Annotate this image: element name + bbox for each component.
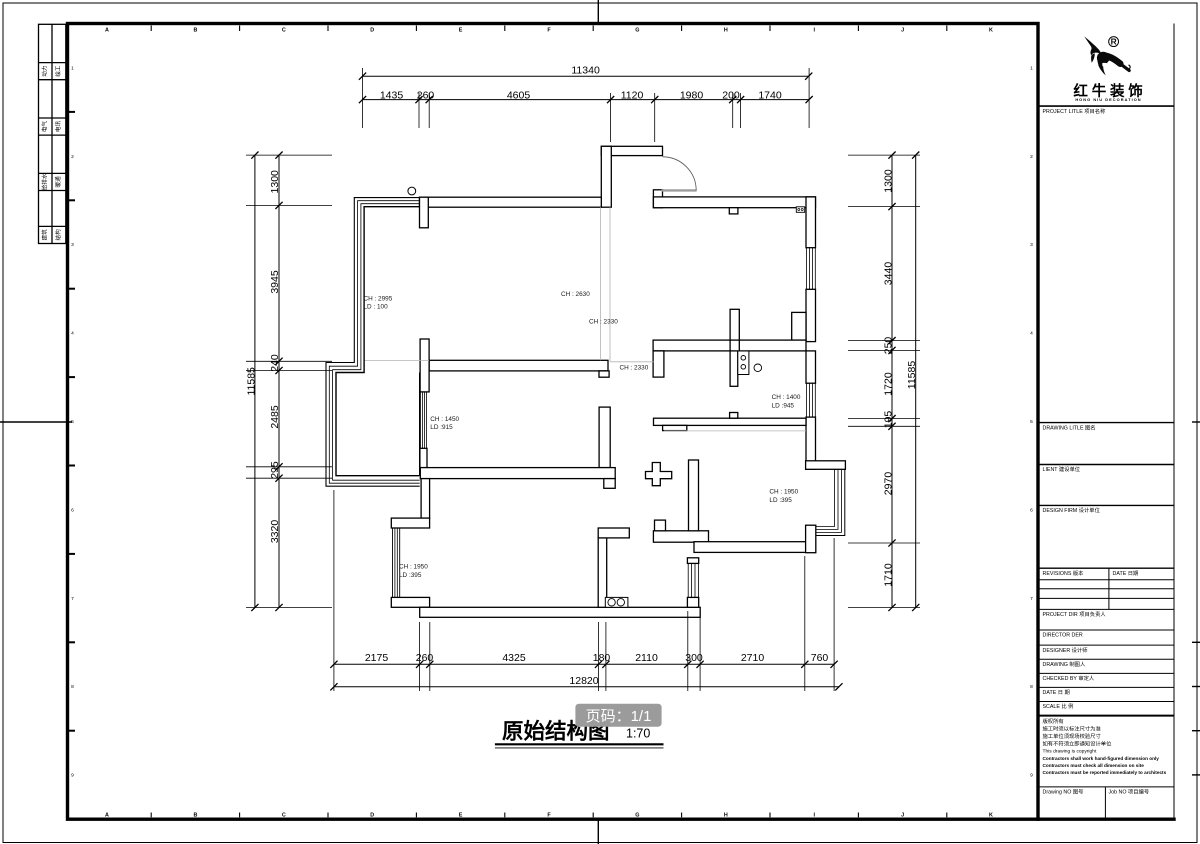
svg-text:6: 6 <box>71 507 74 513</box>
svg-text:200: 200 <box>722 90 740 102</box>
svg-text:1740: 1740 <box>758 90 782 102</box>
svg-text:1980: 1980 <box>680 90 704 102</box>
svg-text:R: R <box>1111 37 1117 47</box>
svg-text:给排水: 给排水 <box>41 173 49 190</box>
svg-text:260: 260 <box>417 90 435 102</box>
svg-text:2175: 2175 <box>365 652 389 664</box>
svg-text:2710: 2710 <box>741 652 765 664</box>
svg-text:6: 6 <box>1030 507 1033 513</box>
svg-text:SCALE 比 例: SCALE 比 例 <box>1043 702 1074 710</box>
svg-text:300: 300 <box>685 652 703 664</box>
svg-text:5: 5 <box>1030 419 1033 425</box>
svg-text:E: E <box>459 28 463 34</box>
svg-text:4325: 4325 <box>502 652 526 664</box>
svg-text:1:70: 1:70 <box>626 727 650 741</box>
svg-text:CH : 2630: CH : 2630 <box>561 291 590 298</box>
svg-text:HONG NIU DECORATION: HONG NIU DECORATION <box>1075 97 1141 102</box>
svg-text:260: 260 <box>416 652 434 664</box>
svg-text:C: C <box>282 813 286 819</box>
svg-text:8: 8 <box>71 684 74 690</box>
svg-text:3: 3 <box>71 242 74 248</box>
svg-text:12820: 12820 <box>569 675 598 687</box>
svg-text:CH : 1950: CH : 1950 <box>399 564 428 571</box>
svg-text:D: D <box>370 28 374 34</box>
svg-text:CH : 2995: CH : 2995 <box>364 296 393 303</box>
svg-text:2485: 2485 <box>269 405 281 429</box>
svg-text:电气: 电气 <box>41 121 49 133</box>
svg-text:This drawing is copyright: This drawing is copyright <box>1043 749 1097 755</box>
svg-text:Contractors must check all dim: Contractors must check all dimension on … <box>1043 763 1145 768</box>
svg-text:如有不符须立即通知设计单位: 如有不符须立即通知设计单位 <box>1043 740 1113 748</box>
svg-text:5: 5 <box>71 419 74 425</box>
svg-text:C: C <box>282 28 286 34</box>
svg-text:DATE 日 期: DATE 日 期 <box>1043 689 1070 696</box>
svg-text:1710: 1710 <box>882 563 894 587</box>
svg-text:295: 295 <box>269 461 281 479</box>
svg-text:暖通: 暖通 <box>54 176 62 188</box>
svg-text:3440: 3440 <box>882 262 894 286</box>
svg-text:9: 9 <box>1030 773 1033 779</box>
svg-text:2: 2 <box>71 154 74 160</box>
svg-text:结构: 结构 <box>54 229 62 241</box>
svg-text:PROJECT DIR 项目负责人: PROJECT DIR 项目负责人 <box>1043 610 1107 618</box>
svg-text:版权所有: 版权所有 <box>1043 717 1064 725</box>
svg-text:CHECKED BY 审定人: CHECKED BY 审定人 <box>1043 674 1095 682</box>
svg-text:G: G <box>635 28 639 34</box>
svg-text:2: 2 <box>1030 154 1033 160</box>
svg-text:11340: 11340 <box>571 65 600 77</box>
svg-text:180: 180 <box>593 652 611 664</box>
svg-text:绘工: 绘工 <box>54 65 62 77</box>
svg-text:240: 240 <box>269 354 281 372</box>
svg-text:施工时须以标注尺寸为准: 施工时须以标注尺寸为准 <box>1043 725 1102 733</box>
svg-text:LD : 100: LD : 100 <box>364 304 389 311</box>
svg-text:11585: 11585 <box>245 367 257 396</box>
svg-text:DESIGN FIRM 设计单位: DESIGN FIRM 设计单位 <box>1043 506 1101 514</box>
svg-text:CH : 2330: CH : 2330 <box>589 319 618 326</box>
svg-text:LIENT 建设单位: LIENT 建设单位 <box>1043 465 1081 473</box>
svg-text:电讯: 电讯 <box>54 121 62 133</box>
svg-text:动力: 动力 <box>41 65 49 77</box>
svg-text:LD :915: LD :915 <box>430 424 453 431</box>
svg-text:2970: 2970 <box>882 472 894 496</box>
svg-text:H: H <box>724 813 728 819</box>
svg-text:建筑: 建筑 <box>41 229 49 241</box>
svg-text:J: J <box>901 28 904 34</box>
svg-text:E: E <box>459 813 463 819</box>
svg-text:施工单位须现场校验尺寸: 施工单位须现场校验尺寸 <box>1043 732 1102 740</box>
svg-text:DRAWING 制图人: DRAWING 制图人 <box>1043 660 1086 668</box>
svg-text:PROJECT LITLE 项目名称: PROJECT LITLE 项目名称 <box>1043 107 1107 115</box>
svg-text:760: 760 <box>811 652 829 664</box>
svg-text:9: 9 <box>71 773 74 779</box>
svg-text:CH : 2330: CH : 2330 <box>620 364 649 371</box>
svg-text:LD :395: LD :395 <box>399 572 422 579</box>
svg-text:250: 250 <box>882 337 894 355</box>
svg-text:LD :945: LD :945 <box>772 403 795 410</box>
svg-text:1300: 1300 <box>882 169 894 193</box>
svg-text:DATE 日期: DATE 日期 <box>1113 570 1139 577</box>
svg-text:1720: 1720 <box>882 372 894 396</box>
svg-text:1435: 1435 <box>380 90 404 102</box>
svg-text:1300: 1300 <box>269 170 281 194</box>
svg-text:CH : 1450: CH : 1450 <box>430 416 459 423</box>
svg-text:3945: 3945 <box>269 270 281 294</box>
svg-text:4: 4 <box>1030 331 1033 337</box>
svg-text:8: 8 <box>1030 684 1033 690</box>
svg-text:A: A <box>105 28 109 34</box>
svg-text:4605: 4605 <box>507 90 531 102</box>
svg-text:D: D <box>370 813 374 819</box>
svg-text:Drawing NO 图号: Drawing NO 图号 <box>1043 788 1084 796</box>
svg-text:K: K <box>989 28 993 34</box>
svg-text:LD :395: LD :395 <box>769 497 792 504</box>
svg-text:1: 1 <box>71 65 74 71</box>
svg-text:Job NO 项目编号: Job NO 项目编号 <box>1109 788 1150 796</box>
svg-text:CH : 1400: CH : 1400 <box>772 394 801 401</box>
svg-text:7: 7 <box>71 596 74 602</box>
svg-text:J: J <box>901 813 904 819</box>
svg-text:页码：1/1: 页码：1/1 <box>586 708 652 725</box>
svg-text:3320: 3320 <box>269 520 281 544</box>
svg-text:CH : 1950: CH : 1950 <box>769 489 798 496</box>
svg-text:195: 195 <box>882 411 894 429</box>
svg-text:Contractors shall work hand-fi: Contractors shall work hand-figured dime… <box>1043 756 1160 761</box>
svg-text:1: 1 <box>1030 65 1033 71</box>
svg-text:A: A <box>105 813 109 819</box>
svg-text:B: B <box>193 813 197 819</box>
svg-text:2110: 2110 <box>635 652 658 664</box>
svg-text:3: 3 <box>1030 242 1033 248</box>
svg-text:1120: 1120 <box>621 90 644 102</box>
svg-text:DIRECTOR DER: DIRECTOR DER <box>1043 633 1083 639</box>
svg-text:4: 4 <box>71 331 74 337</box>
svg-text:DRAWING LITLE 图名: DRAWING LITLE 图名 <box>1043 423 1096 431</box>
svg-text:H: H <box>724 28 728 34</box>
svg-text:REVISIONS 版本: REVISIONS 版本 <box>1043 569 1085 577</box>
svg-text:K: K <box>989 813 993 819</box>
svg-text:G: G <box>635 813 639 819</box>
svg-text:DESIGNER 设计师: DESIGNER 设计师 <box>1043 646 1089 654</box>
svg-text:11585: 11585 <box>906 361 918 390</box>
svg-text:B: B <box>193 28 197 34</box>
svg-text:7: 7 <box>1030 596 1033 602</box>
svg-text:Contractors must be reported i: Contractors must be reported immediately… <box>1043 770 1167 775</box>
